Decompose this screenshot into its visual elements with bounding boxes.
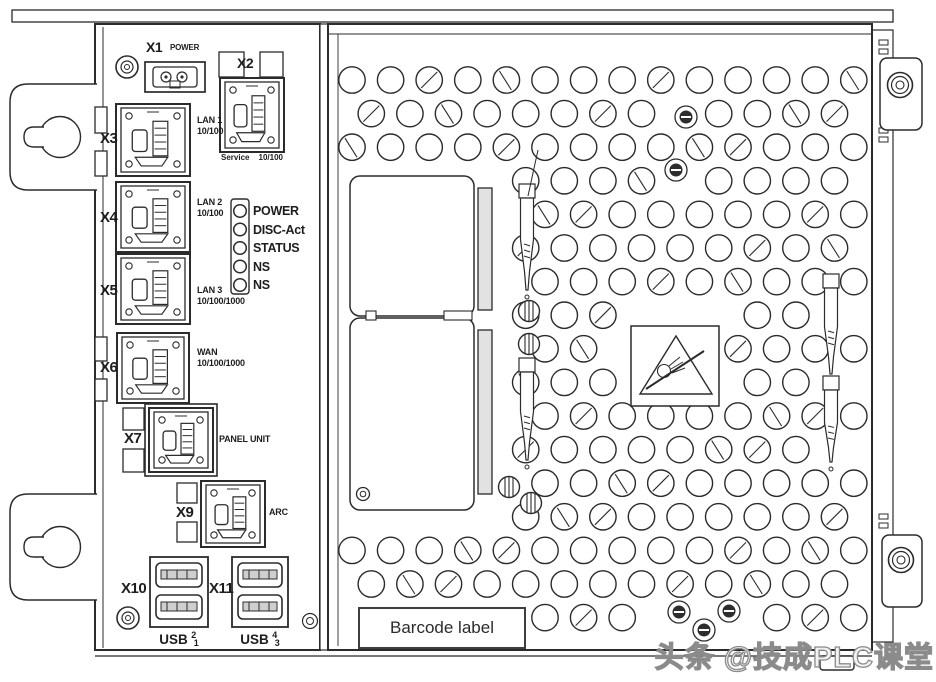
led-label-ns2: NS	[253, 277, 305, 296]
mounting-brackets	[10, 84, 97, 600]
arc-label: ARC	[269, 507, 288, 517]
x11-usb-label: USB43	[231, 632, 289, 647]
led-label-disc-act: DISC-Act	[253, 222, 305, 241]
led-label-status: STATUS	[253, 240, 305, 259]
watermark-text: 头条 @技成PLC课堂	[655, 634, 934, 676]
x2-label: X2	[237, 55, 253, 71]
x3-sublabel: LAN 1 10/100	[197, 115, 223, 136]
x5-label: X5	[100, 282, 117, 299]
x10-label: X10	[121, 580, 146, 597]
x9-label: X9	[176, 504, 193, 521]
x1-power-connector	[145, 62, 205, 92]
x2-service-label: Service	[221, 153, 249, 162]
barcode-label-text: Barcode label	[390, 618, 494, 638]
rear-panel-diagram: X1 POWER X2 Service 10/100 X3 LAN 1 10/1…	[0, 0, 936, 682]
panel-unit-label: PANEL UNIT	[219, 434, 270, 444]
x10-usb-label: USB21	[150, 632, 208, 647]
esd-warning-icon	[631, 326, 719, 406]
x5-sublabel: LAN 3 10/100/1000	[197, 285, 245, 306]
x11-label: X11	[209, 580, 233, 597]
x2-sublabel: Service 10/100	[221, 153, 283, 162]
x4-label: X4	[100, 209, 117, 226]
x3-label: X3	[100, 130, 117, 147]
x6-sublabel: WAN 10/100/1000	[197, 347, 245, 368]
x1-label: X1	[146, 39, 162, 55]
x5-lan3-port	[116, 254, 190, 324]
x10-usb-port	[150, 557, 208, 627]
x6-label: X6	[100, 359, 117, 376]
led-label-ns1: NS	[253, 259, 305, 278]
led-indicators	[231, 199, 249, 294]
x1-power-label: POWER	[170, 43, 199, 52]
x4-sublabel: LAN 2 10/100	[197, 197, 223, 218]
x2-speed-label: 10/100	[259, 153, 283, 162]
blank-plates	[350, 176, 492, 510]
x7-label: X7	[124, 430, 141, 447]
x11-usb-port	[232, 557, 288, 627]
barcode-label-box: Barcode label	[358, 607, 526, 649]
led-labels: POWER DISC-Act STATUS NS NS	[253, 203, 305, 296]
led-label-power: POWER	[253, 203, 305, 222]
x4-lan2-port	[116, 182, 190, 252]
